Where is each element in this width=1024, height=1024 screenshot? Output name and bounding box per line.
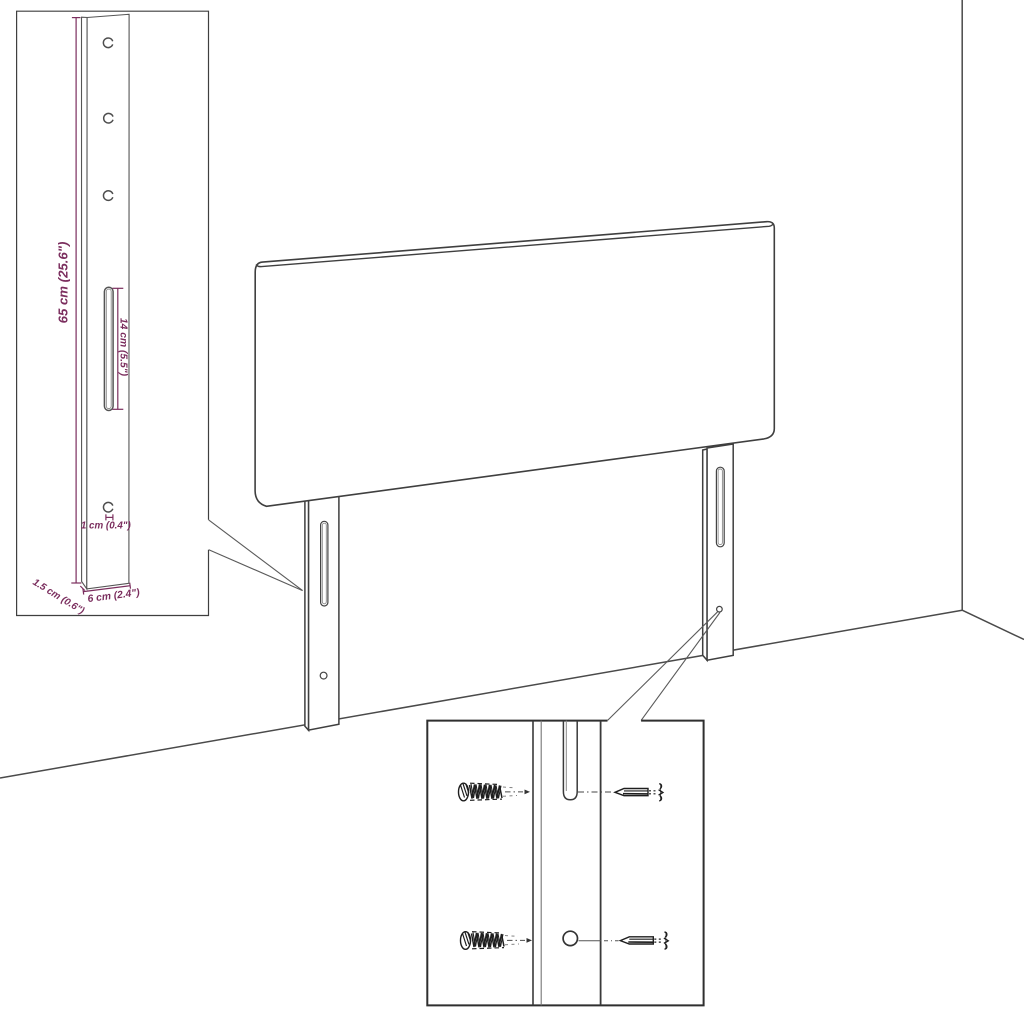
svg-text:1 cm (0.4"): 1 cm (0.4") <box>81 521 131 532</box>
svg-text:14 cm (5.5"): 14 cm (5.5") <box>117 318 128 377</box>
svg-text:65 cm (25.6"): 65 cm (25.6") <box>56 242 71 324</box>
